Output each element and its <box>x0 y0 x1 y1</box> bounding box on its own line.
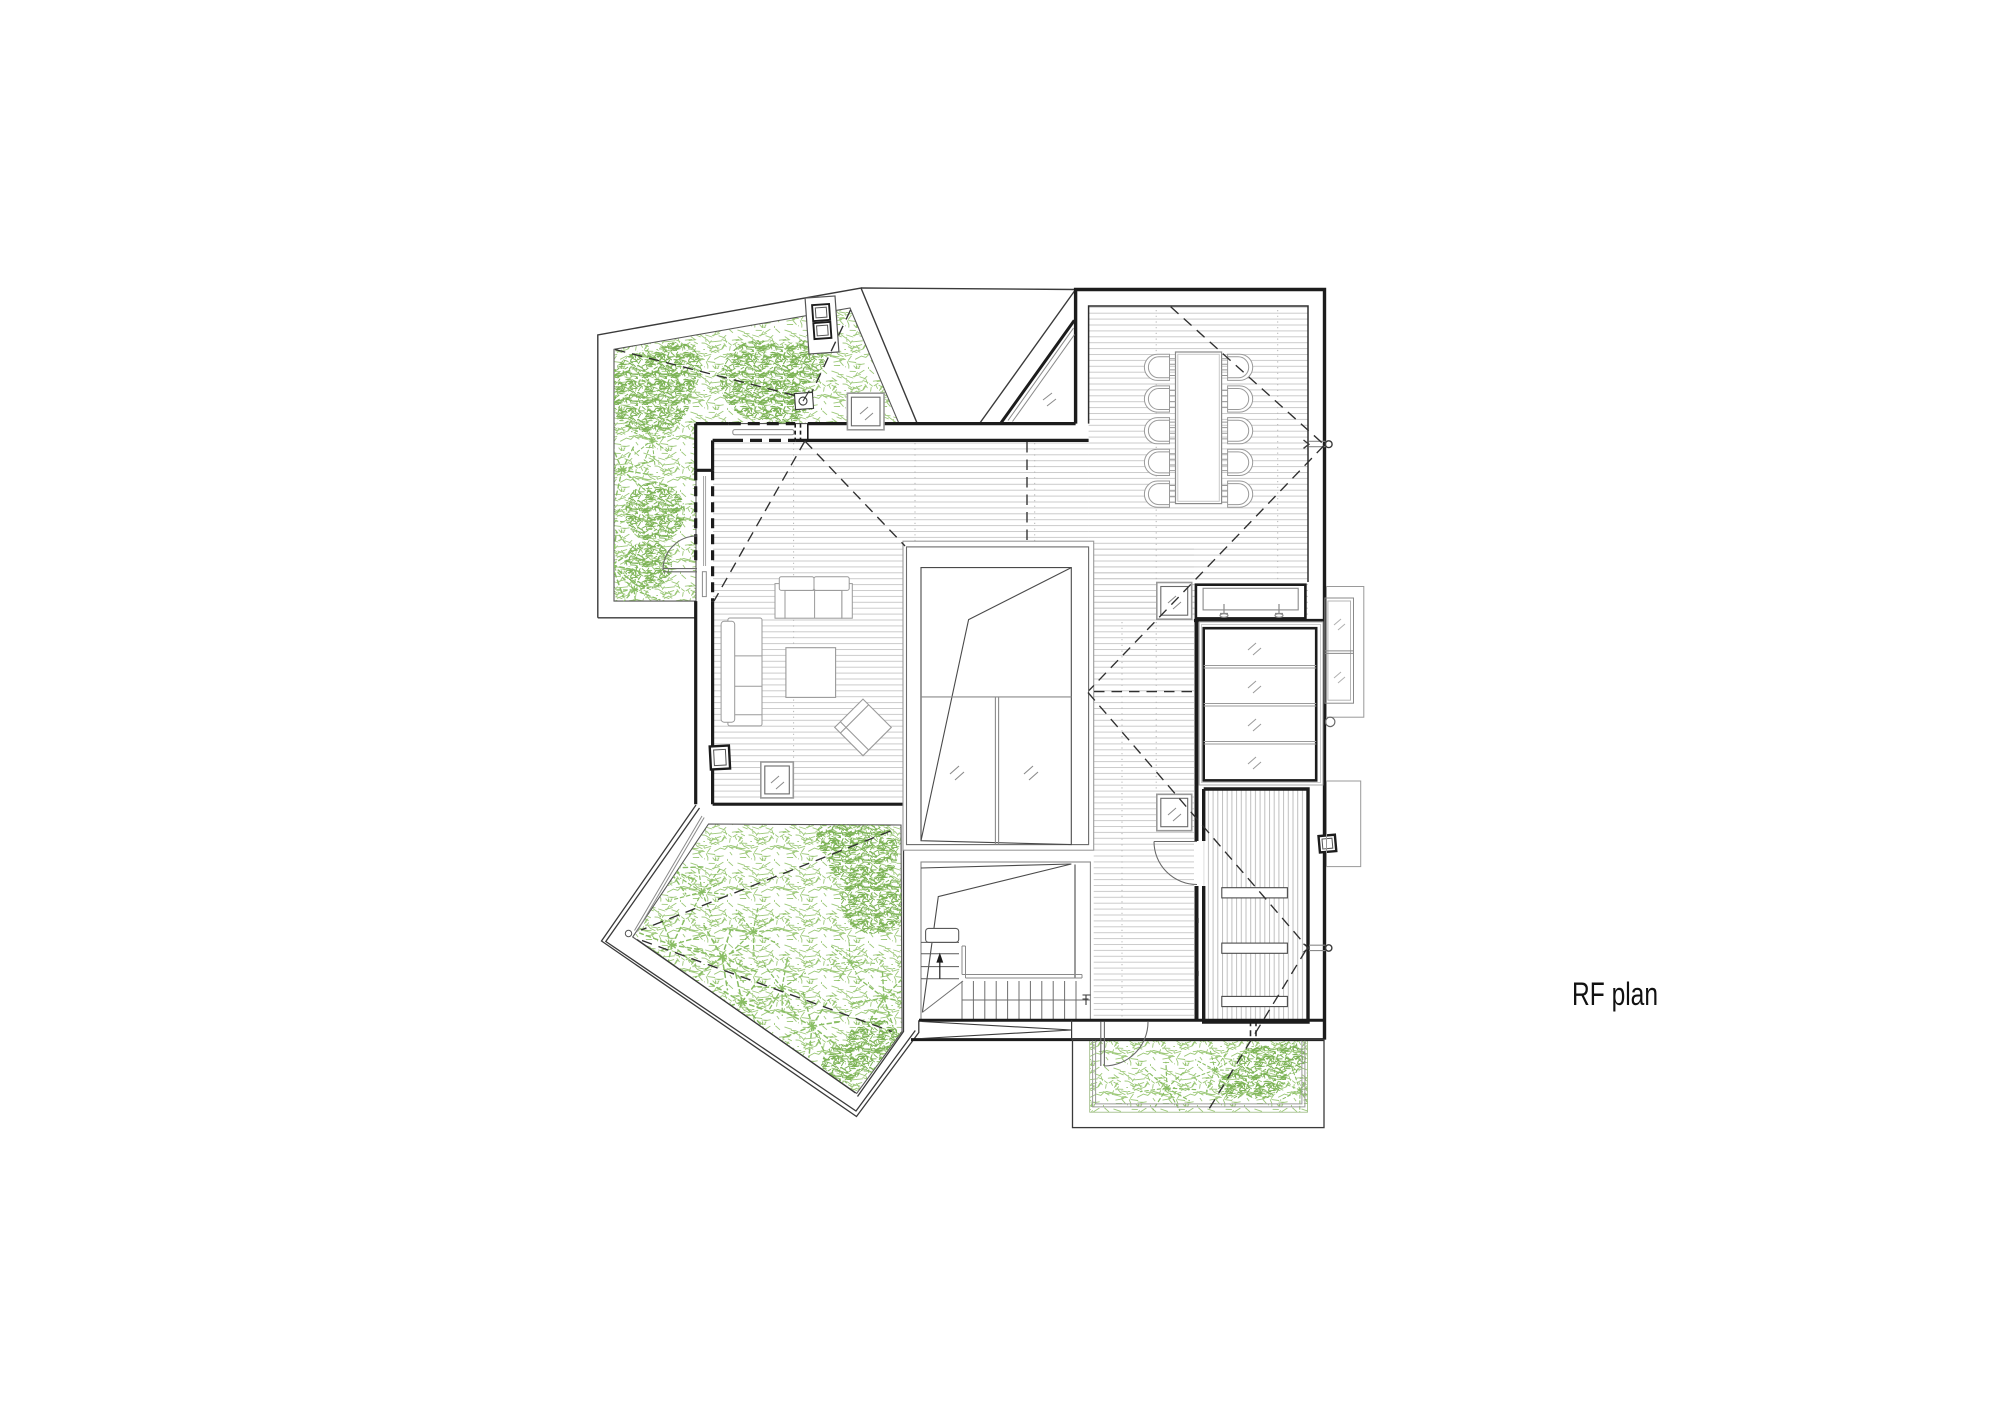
svg-text:RF plan: RF plan <box>1572 976 1658 1012</box>
